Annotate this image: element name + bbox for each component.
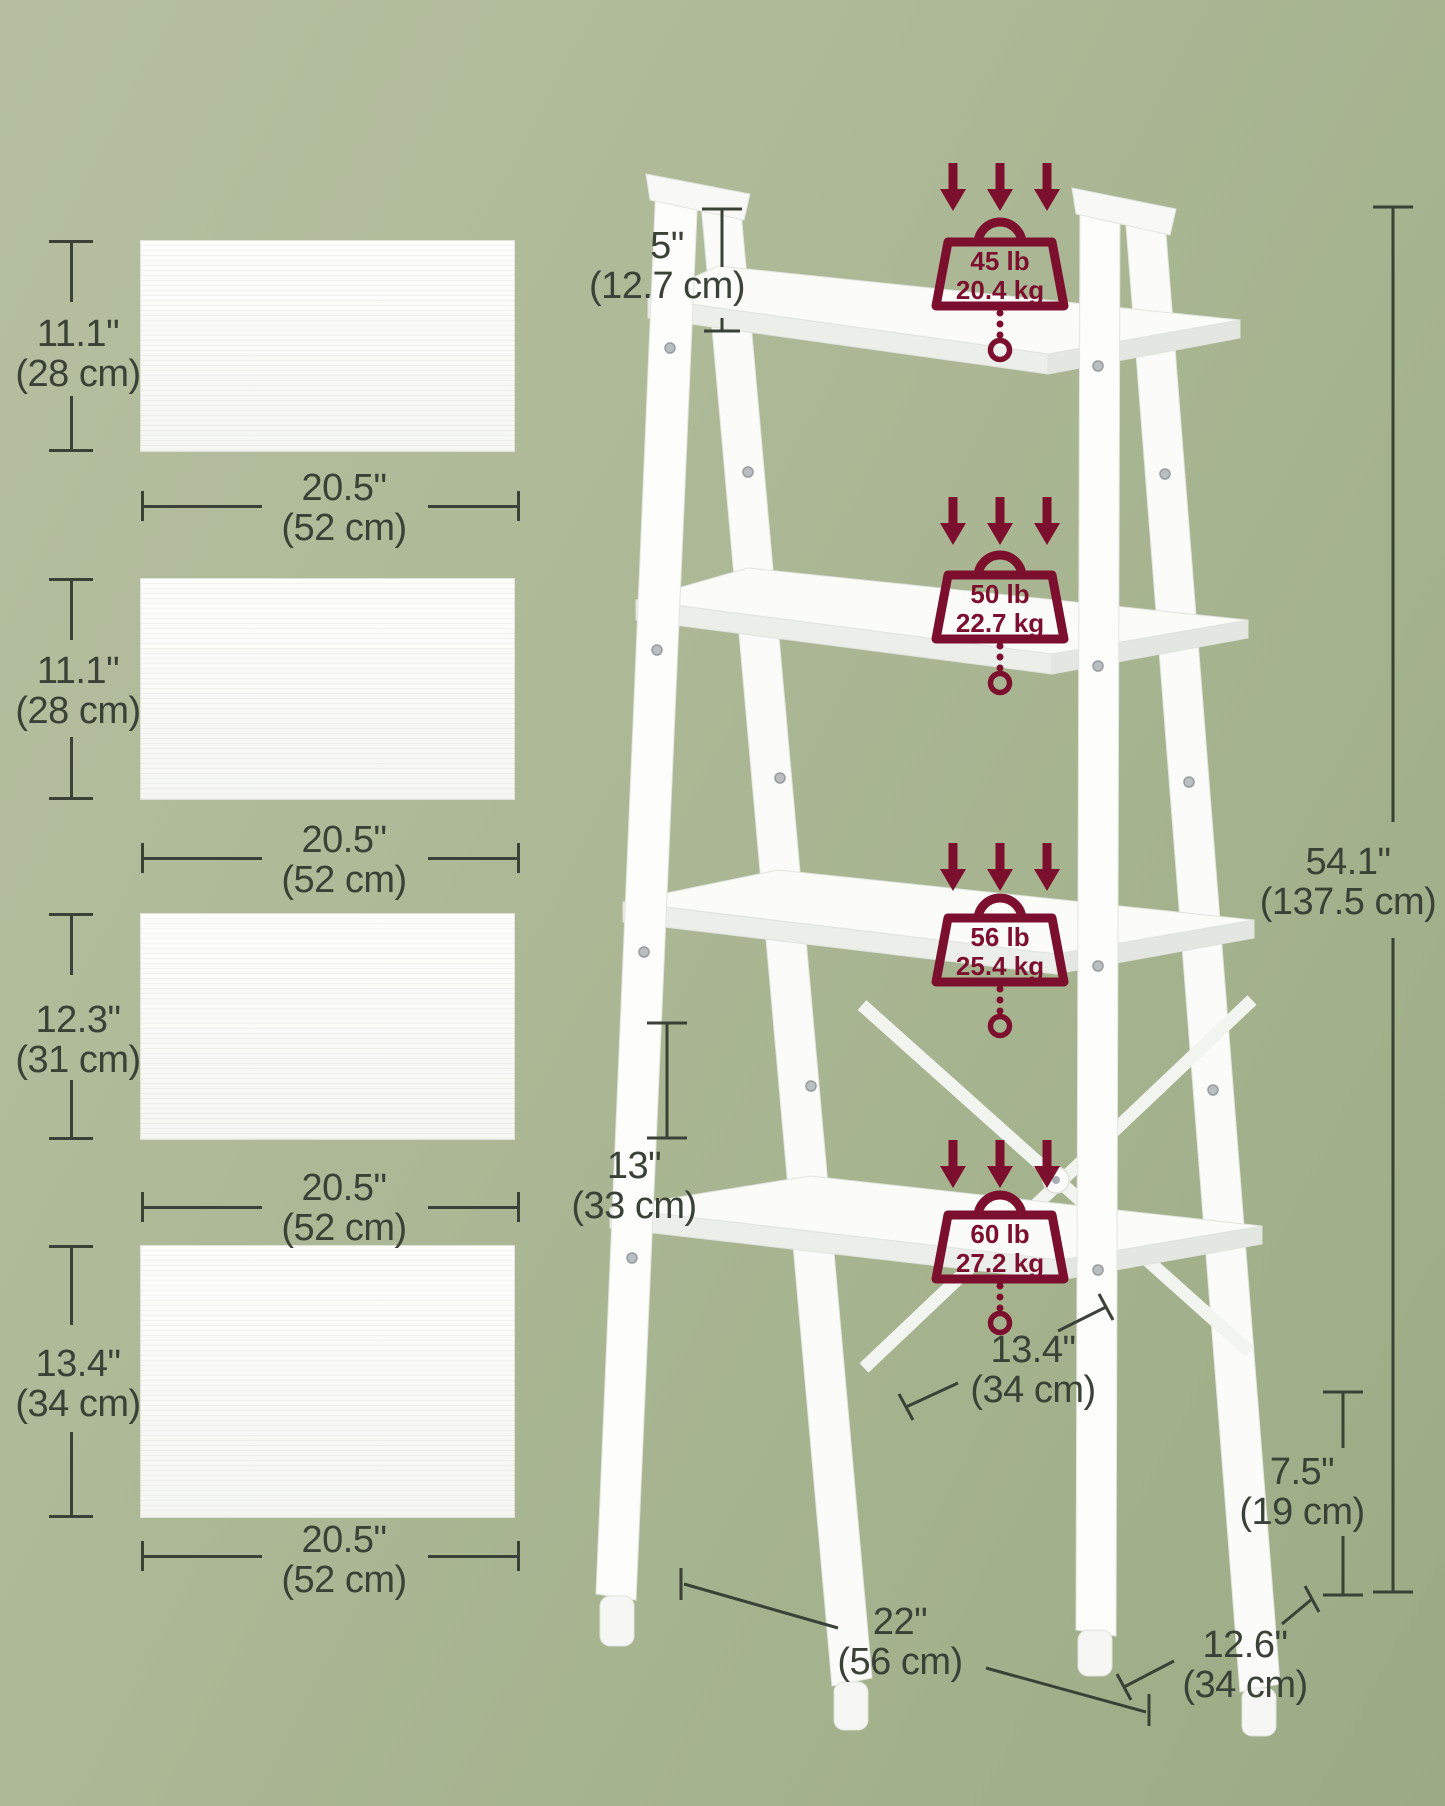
ground-clearance-metric: (19 cm) — [1239, 1492, 1364, 1532]
down-arrows-icon — [940, 163, 1060, 211]
ground-clearance-label: 7.5" (19 cm) — [1239, 1452, 1364, 1533]
top-clearance-metric: (12.7 cm) — [589, 266, 745, 306]
load-capacity-2-kg: 22.7 kg — [956, 609, 1044, 638]
shelf-spacing-metric: (33 cm) — [571, 1186, 696, 1226]
bottom-shelf-depth-label: 13.4" (34 cm) — [970, 1330, 1095, 1411]
load-point-dots — [997, 643, 1004, 672]
down-arrows-icon — [940, 497, 1060, 545]
top-clearance-label: 5" (12.7 cm) — [589, 226, 745, 307]
total-height-imperial: 54.1" — [1260, 842, 1437, 882]
overall-depth-metric: (34 cm) — [1182, 1665, 1307, 1705]
foot — [1078, 1630, 1112, 1676]
down-arrows-icon — [940, 843, 1060, 891]
load-capacity-1-label: 45 lb 20.4 kg — [956, 247, 1044, 305]
top-clearance-imperial: 5" — [589, 226, 745, 266]
load-capacity-3-label: 56 lb 25.4 kg — [956, 923, 1044, 981]
load-capacity-4-kg: 27.2 kg — [956, 1249, 1044, 1278]
overall-depth-label: 12.6" (34 cm) — [1182, 1625, 1307, 1706]
load-capacity-2-lb: 50 lb — [956, 580, 1044, 609]
bottom-shelf-depth-metric: (34 cm) — [970, 1370, 1095, 1410]
foot — [600, 1596, 634, 1646]
ladder-shelf-dimension-diagram: 11.1" (28 cm) 11.1" (28 cm) 12.3" (31 cm… — [0, 0, 1445, 1806]
load-point-dots — [997, 310, 1004, 339]
load-point-dots — [997, 1283, 1004, 1312]
shelf-spacing-label: 13" (33 cm) — [571, 1146, 696, 1227]
load-capacity-3-kg: 25.4 kg — [956, 952, 1044, 981]
front-right-leg — [1076, 194, 1120, 1636]
x-brace — [862, 1000, 1252, 1368]
bottom-shelf-depth-imperial: 13.4" — [970, 1330, 1095, 1370]
screws — [627, 343, 1218, 1275]
load-point-dots — [997, 986, 1004, 1015]
overall-width-metric: (56 cm) — [837, 1642, 962, 1682]
ground-clearance-imperial: 7.5" — [1239, 1452, 1364, 1492]
total-height-label: 54.1" (137.5 cm) — [1260, 842, 1437, 923]
overall-width-imperial: 22" — [837, 1602, 962, 1642]
load-point-ring — [991, 674, 1010, 693]
overall-width-label: 22" (56 cm) — [837, 1602, 962, 1683]
overall-depth-imperial: 12.6" — [1182, 1625, 1307, 1665]
foot — [834, 1682, 868, 1730]
load-point-ring — [991, 1017, 1010, 1036]
shelf-spacing-imperial: 13" — [571, 1146, 696, 1186]
load-capacity-4-lb: 60 lb — [956, 1220, 1044, 1249]
total-height-metric: (137.5 cm) — [1260, 882, 1437, 922]
load-capacity-4-label: 60 lb 27.2 kg — [956, 1220, 1044, 1278]
load-capacity-3-lb: 56 lb — [956, 923, 1044, 952]
load-capacity-1-lb: 45 lb — [956, 247, 1044, 276]
load-capacity-2-label: 50 lb 22.7 kg — [956, 580, 1044, 638]
load-capacity-1-kg: 20.4 kg — [956, 276, 1044, 305]
